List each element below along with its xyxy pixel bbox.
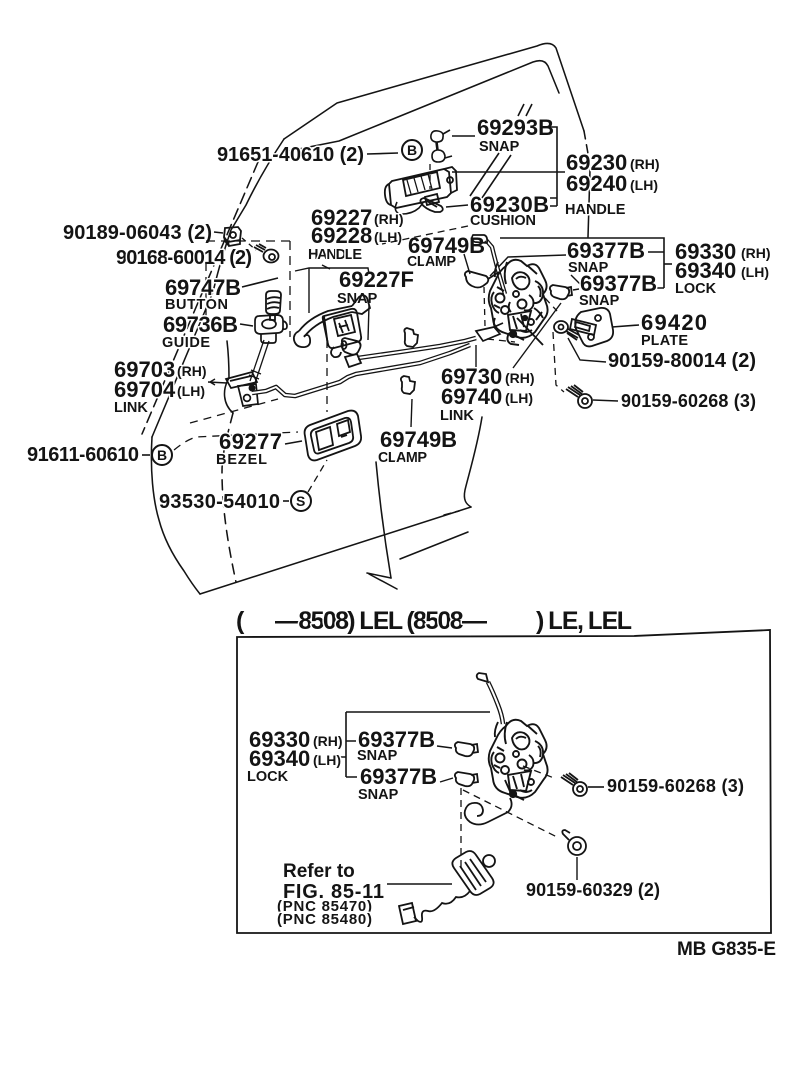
svg-text:LOCK: LOCK (247, 769, 289, 785)
svg-text:(RH): (RH) (374, 211, 404, 227)
svg-text:(: ( (236, 607, 245, 635)
svg-text:(RH): (RH) (741, 245, 771, 261)
svg-text:(LH): (LH) (630, 177, 658, 193)
svg-text:(LH): (LH) (505, 390, 533, 406)
svg-text:CUSHION: CUSHION (470, 213, 536, 229)
svg-text:69736B: 69736B (163, 312, 238, 337)
svg-text:SNAP: SNAP (357, 748, 398, 764)
svg-text:69277: 69277 (219, 429, 282, 454)
svg-text:(RH): (RH) (177, 363, 207, 379)
svg-text:(RH): (RH) (630, 156, 660, 172)
svg-text:—8508) LEL (8508—: —8508) LEL (8508— (275, 607, 487, 635)
svg-text:69420: 69420 (641, 310, 707, 335)
svg-text:SNAP: SNAP (358, 787, 399, 803)
svg-text:(LH): (LH) (177, 383, 205, 399)
svg-text:HANDLE: HANDLE (308, 247, 362, 263)
svg-text:SNAP: SNAP (479, 139, 520, 155)
svg-text:69377B: 69377B (360, 764, 437, 789)
svg-text:SNAP: SNAP (579, 293, 620, 309)
svg-text:69704: 69704 (114, 377, 176, 402)
svg-text:90159-80014 (2): 90159-80014 (2) (608, 350, 756, 372)
svg-text:LINK: LINK (440, 408, 474, 424)
svg-text:HANDLE: HANDLE (565, 202, 626, 218)
svg-text:GUIDE: GUIDE (162, 335, 210, 351)
svg-text:MB G835-E: MB G835-E (677, 939, 776, 960)
svg-text:69340: 69340 (675, 258, 736, 283)
svg-text:LINK: LINK (114, 400, 148, 416)
svg-text:CLAMP: CLAMP (407, 254, 456, 270)
svg-text:90159-60329 (2): 90159-60329 (2) (526, 880, 660, 900)
svg-text:(RH): (RH) (505, 370, 535, 386)
svg-text:69740: 69740 (441, 384, 502, 409)
svg-text:91651-40610 (2): 91651-40610 (2) (217, 144, 364, 166)
svg-text:91611-60610: 91611-60610 (27, 444, 139, 466)
svg-text:(LH): (LH) (374, 229, 402, 245)
svg-text:90189-06043 (2): 90189-06043 (2) (63, 222, 212, 244)
svg-text:90168-60014 (2): 90168-60014 (2) (116, 247, 252, 269)
svg-text:(PNC 85480): (PNC 85480) (277, 911, 372, 928)
svg-text:69293B: 69293B (477, 115, 554, 140)
svg-text:B: B (157, 447, 167, 463)
svg-text:B: B (407, 142, 417, 158)
svg-text:69340: 69340 (249, 746, 310, 771)
svg-text:S: S (296, 493, 305, 509)
svg-text:90159-60268 (3): 90159-60268 (3) (621, 391, 756, 411)
svg-text:69227F: 69227F (339, 267, 414, 292)
svg-text:Refer to: Refer to (283, 861, 355, 882)
svg-text:PLATE: PLATE (641, 333, 688, 349)
svg-text:(RH): (RH) (313, 733, 343, 749)
svg-text:69749B: 69749B (380, 427, 457, 452)
svg-text:CLAMP: CLAMP (378, 450, 427, 466)
svg-text:LOCK: LOCK (675, 281, 717, 297)
svg-text:(LH): (LH) (313, 752, 341, 768)
svg-text:) LE, LEL: ) LE, LEL (536, 607, 632, 635)
svg-text:69228: 69228 (311, 223, 372, 248)
svg-text:69240: 69240 (566, 171, 627, 196)
svg-text:BUTTON: BUTTON (165, 297, 228, 313)
svg-text:BEZEL: BEZEL (216, 452, 267, 468)
svg-text:90159-60268 (3): 90159-60268 (3) (607, 776, 744, 796)
svg-text:93530-54010: 93530-54010 (159, 491, 280, 513)
svg-text:(LH): (LH) (741, 264, 769, 280)
